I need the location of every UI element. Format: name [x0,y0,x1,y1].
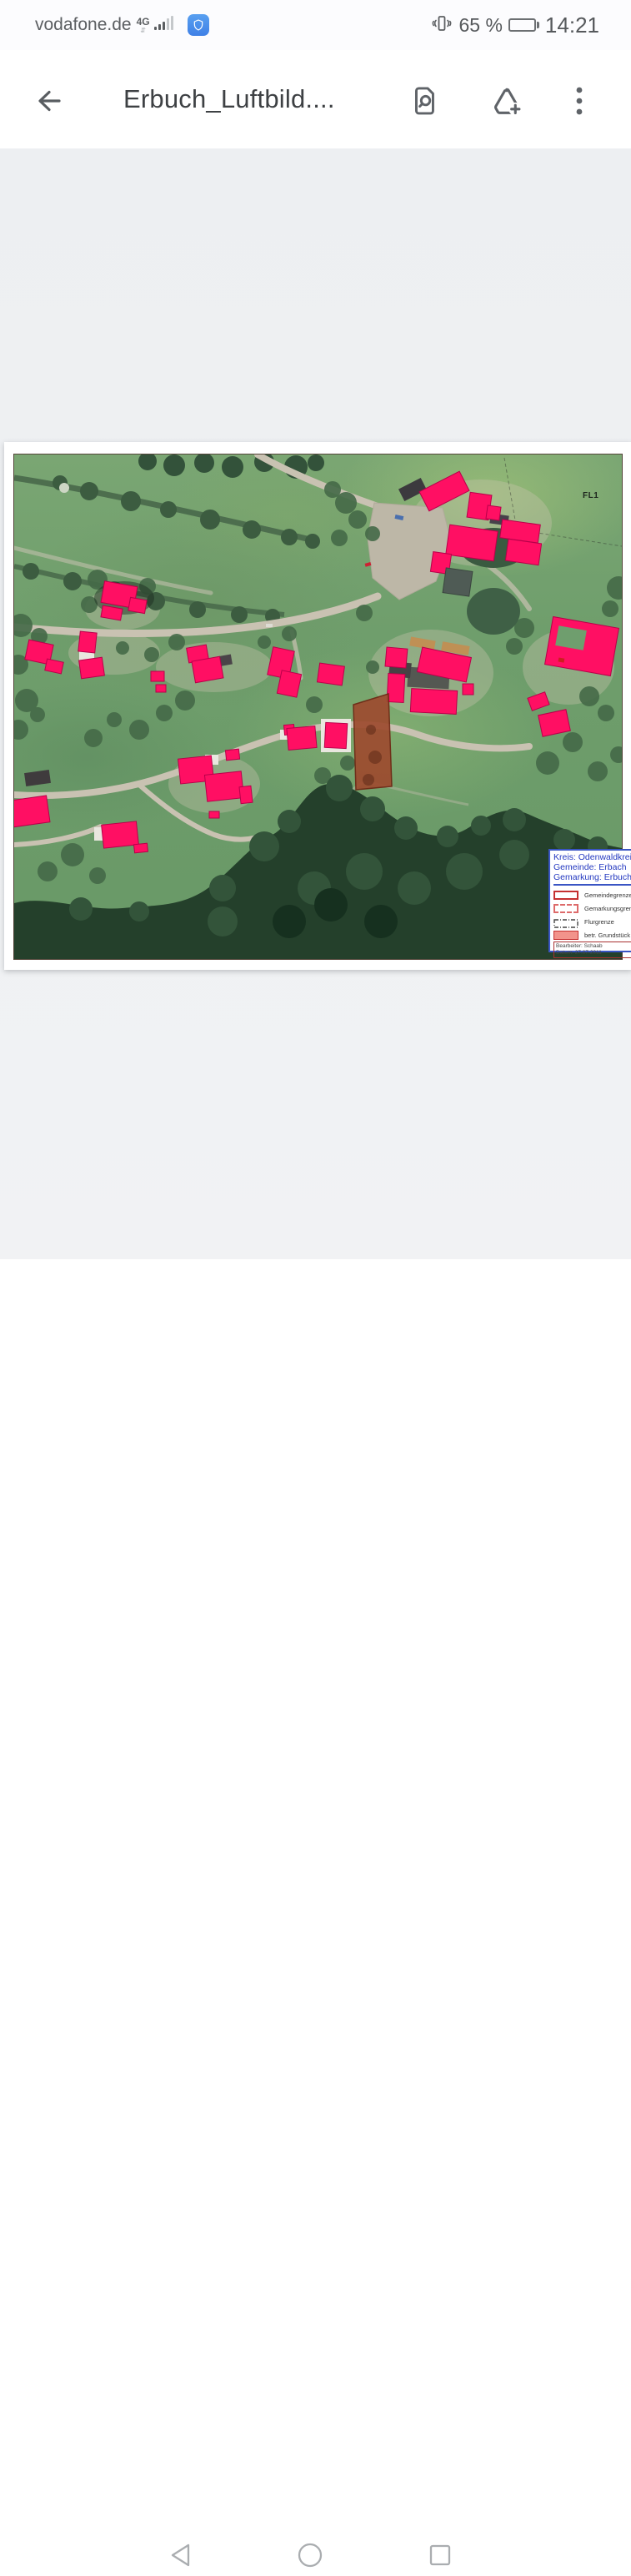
back-triangle-icon [165,2538,198,2572]
overflow-menu-icon [575,86,583,116]
hedgerows [14,478,318,615]
home-circle-icon [293,2538,327,2572]
red-solid-outline-swatch [553,891,578,900]
add-to-drive-button[interactable] [488,83,525,119]
highlighted-parcel [353,694,392,790]
carrier-label: vodafone.de [35,15,132,35]
clock-label: 14:21 [545,13,599,38]
red-dashed-outline-swatch [553,904,578,913]
nav-recents-button[interactable] [423,2538,457,2572]
android-nav-bar [0,1259,631,1335]
find-in-document-icon [412,86,438,116]
recents-square-icon [423,2538,457,2572]
legend-item-gemarkungsgrenze: Gemarkungsgrenze [553,901,631,915]
battery-icon [508,18,539,32]
app-header: Erbuch_Luftbild.... [0,50,631,148]
phone-manager-shield-icon [188,14,209,36]
legend-gemarkung: Gemarkung: Erbuch [553,872,631,882]
pond-basin [443,568,473,596]
overflow-menu-button[interactable] [561,83,598,119]
legend-item-grundstueck: betr. Grundstück [553,928,631,942]
map-frame: FL1 [13,454,623,960]
legend-item-gemeindegrenze: Gemeindegrenze [553,888,631,901]
legend-date: Datum: 27.07.2011 [556,950,631,957]
back-arrow-icon [32,84,65,118]
page-title: Erbuch_Luftbild.... [123,50,335,148]
field-parcel-label: FL1 [583,491,598,500]
find-in-document-button[interactable] [407,83,443,119]
document-page[interactable]: FL1 Kreis: Odenwaldkreis Gemeinde: Erbac… [4,442,631,970]
forest [14,784,622,959]
battery-percent-label: 65 % [458,14,502,37]
status-bar: vodafone.de 4G ⇵ [0,0,631,50]
network-type-badge: 4G ⇵ [137,17,150,34]
nav-back-button[interactable] [165,2538,198,2572]
tree-mass-below-plaza [467,588,520,635]
legend-meta-box: Bearbeiter: Schaab Datum: 27.07.2011 [553,942,631,958]
aerial-map-graphic [14,454,622,959]
network-activity-icon: ⇵ [140,28,146,34]
road-junction-plaza [368,503,451,600]
salmon-filled-swatch [553,931,578,940]
vibrate-icon [431,13,453,38]
legend-item-flurgrenze: Flurgrenze [553,915,631,928]
legend-header: Kreis: Odenwaldkreis Gemeinde: Erbach Ge… [553,852,631,886]
nav-home-button[interactable] [293,2538,327,2572]
black-dashdot-outline-swatch [553,917,578,926]
legend-editor: Bearbeiter: Schaab [556,943,631,950]
back-button[interactable] [32,84,65,118]
map-legend: Kreis: Odenwaldkreis Gemeinde: Erbach Ge… [548,849,631,952]
legend-kreis: Kreis: Odenwaldkreis [553,852,631,862]
legend-gemeinde: Gemeinde: Erbach [553,862,631,872]
aerial-photo: FL1 [14,454,622,959]
add-to-drive-icon [491,87,523,115]
signal-bars-icon [154,15,178,36]
